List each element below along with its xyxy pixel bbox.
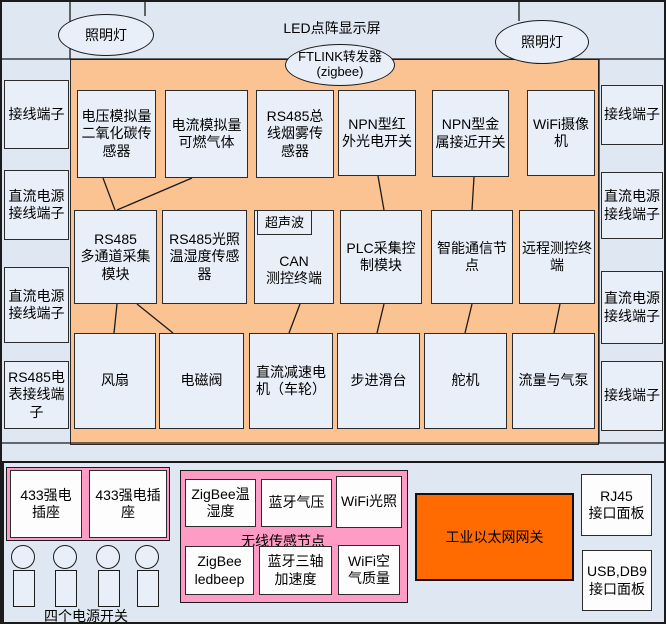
power-switch-body-2 [55,570,77,607]
node-rs485-smoke-sensor: RS485总 线烟雾传 感器 [256,90,334,178]
rs485-meter-terminal-left: RS485电 表接线端 子 [4,361,69,429]
socket-433-2: 433强电插 座 [89,470,167,538]
terminal-block-right-2: 接线端子 [601,361,663,431]
dc-power-terminal-left-2: 直流电源 接线端子 [4,267,69,343]
wireless-node-bluetooth-accelerometer: 蓝牙三轴 加速度 [259,546,332,595]
page-title: LED点阵显示屏 [262,18,402,38]
lamp-left-ellipse: 照明灯 [58,14,154,56]
node-wifi-camera: WiFi摄像 机 [527,90,595,176]
ultrasonic-tag: 超声波 [257,210,312,235]
power-switch-body-1 [13,570,35,607]
power-switch-label: 四个电源开关 [40,606,132,624]
node-fan: 风扇 [74,333,156,429]
node-rs485-light-temp-humidity-sensor: RS485光照 温湿度传感 器 [162,210,247,304]
node-rs485-multichannel-module: RS485 多通道采集 模块 [74,210,157,304]
dc-power-terminal-left-1: 直流电源 接线端子 [4,170,69,240]
node-solenoid-valve: 电磁阀 [159,333,244,429]
ftlink-repeater-ellipse: FTLINK转发器 (zigbee) [285,44,395,86]
node-stepper-slide: 步进滑台 [337,333,420,429]
node-npn-proximity-switch: NPN型金 属接近开关 [432,90,509,177]
dc-power-terminal-right-2: 直流电源 接线端子 [601,271,663,344]
node-servo: 舵机 [424,333,507,429]
node-voltage-co2-sensor: 电压模拟量 二氧化碳传 感器 [77,90,156,178]
power-switch-knob-2 [53,545,77,569]
power-switch-body-3 [98,570,120,607]
node-remote-control-terminal: 远程测控终 端 [519,210,595,304]
node-current-gas-sensor: 电流模拟量 可燃气体 [165,90,248,178]
usb-db9-interface-panel: USB,DB9 接口面板 [582,550,652,611]
node-plc-control-module: PLC采集控 制模块 [340,210,422,304]
terminal-block-right-1: 接线端子 [601,85,663,145]
dc-power-terminal-right-1: 直流电源 接线端子 [601,172,663,239]
wireless-node-bluetooth-pressure: 蓝牙气压 [261,479,332,527]
node-npn-photoelectric-switch: NPN型红 外光电开关 [338,90,416,176]
wireless-node-zigbee-ledbeep: ZigBee ledbeep [185,546,254,595]
power-switch-knob-1 [11,545,35,569]
wireless-node-wifi-light: WiFi光照 [336,476,402,528]
terminal-block-left: 接线端子 [4,80,69,149]
hardware-block-diagram: LED点阵显示屏 照明灯 照明灯 FTLINK转发器 (zigbee) 接线端子… [0,0,666,624]
node-smart-comm-node: 智能通信节 点 [431,210,513,304]
node-flow-air-pump: 流量与气泵 [512,333,595,429]
power-switch-knob-4 [135,545,159,569]
socket-433-1: 433强电 插座 [10,470,82,538]
power-switch-body-4 [137,570,159,607]
wireless-node-wifi-air-quality: WiFi空 气质量 [338,545,400,595]
industrial-ethernet-gateway: 工业以太网网关 [415,493,574,581]
node-dc-gear-motor: 直流减速电 机（车轮） [249,333,333,429]
lamp-right-ellipse: 照明灯 [495,20,589,64]
power-switch-knob-3 [96,545,120,569]
wireless-node-zigbee-temp-humidity: ZigBee温 湿度 [185,479,256,527]
rj45-interface-panel: RJ45 接口面板 [581,474,652,536]
